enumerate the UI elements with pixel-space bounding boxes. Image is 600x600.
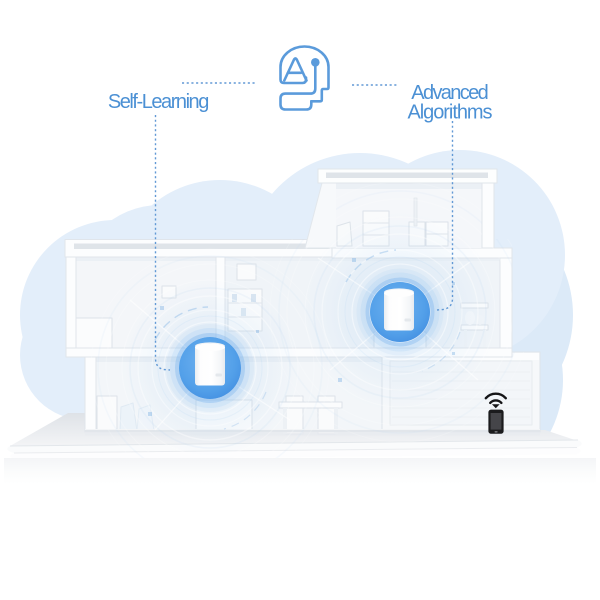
svg-text:Algorithms: Algorithms — [408, 101, 493, 123]
svg-text:Self-Learning: Self-Learning — [108, 91, 210, 113]
